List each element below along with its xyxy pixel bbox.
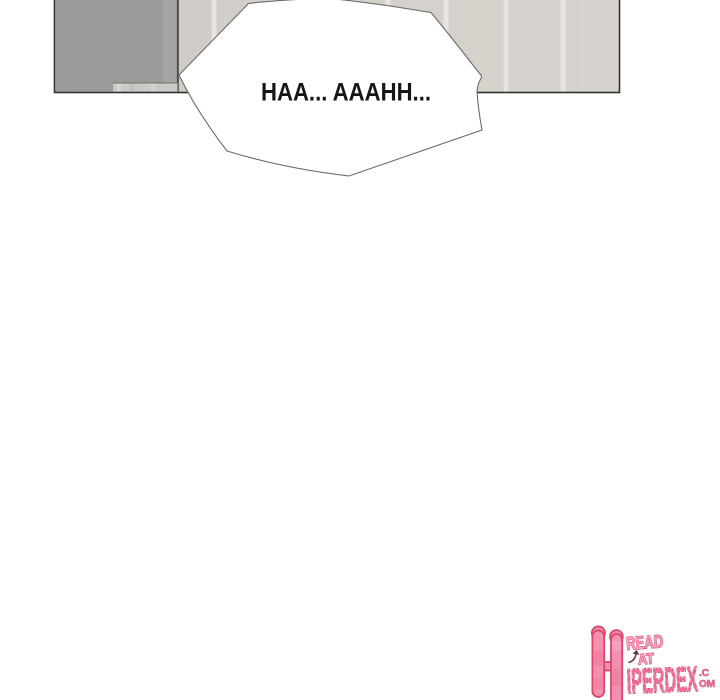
svg-text:OM: OM [699,679,715,690]
svg-text:IPERDEX: IPERDEX [626,660,699,700]
svg-text:HAA... AAAHH...: HAA... AAAHH... [261,79,431,107]
svg-text:.C: .C [699,668,709,679]
